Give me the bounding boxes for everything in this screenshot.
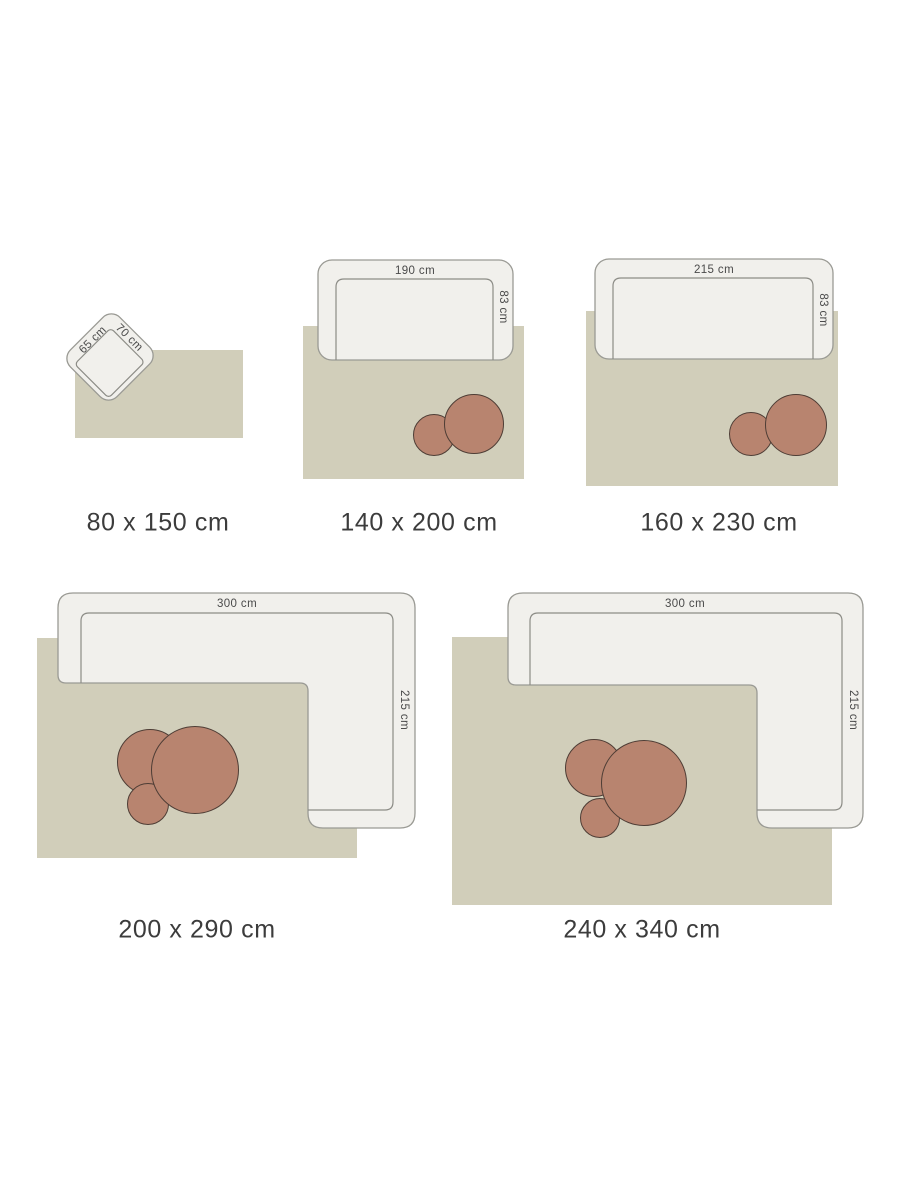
side-table-large xyxy=(151,726,239,814)
sofa-drawing: 215 cm 83 cm xyxy=(588,252,848,372)
corner-sofa-drawing: 300 cm 215 cm xyxy=(50,585,425,840)
side-table-large xyxy=(601,740,687,826)
sofa-width-dimension-label: 300 cm xyxy=(665,598,705,610)
size-caption: 240 x 340 cm xyxy=(563,916,720,945)
size-caption: 140 x 200 cm xyxy=(340,509,497,538)
size-caption: 160 x 230 cm xyxy=(640,509,797,538)
side-table-large xyxy=(765,394,827,456)
sofa-depth-dimension-label: 83 cm xyxy=(497,290,509,323)
sofa-depth-dimension-label: 83 cm xyxy=(817,293,829,326)
sofa-width-dimension-label: 190 cm xyxy=(395,265,435,277)
size-caption: 200 x 290 cm xyxy=(118,916,275,945)
size-caption: 80 x 150 cm xyxy=(87,509,230,538)
sofa-depth-dimension-label: 215 cm xyxy=(847,690,859,730)
corner-sofa-drawing: 300 cm 215 cm xyxy=(500,585,875,840)
sofa-depth-dimension-label: 215 cm xyxy=(398,690,410,730)
side-table-large xyxy=(444,394,504,454)
sofa-width-dimension-label: 300 cm xyxy=(217,598,257,610)
armchair-drawing: 65 cm 70 cm xyxy=(40,285,185,425)
corner-sofa-body xyxy=(58,593,415,828)
armchair-shape: 65 cm 70 cm xyxy=(62,309,158,405)
sofa-width-dimension-label: 215 cm xyxy=(694,264,734,276)
sofa-drawing: 190 cm 83 cm xyxy=(310,252,525,372)
rug-size-guide: 65 cm 70 cm 80 x 150 cm 190 cm 83 cm 140… xyxy=(0,0,900,1200)
armchair-body xyxy=(62,309,158,405)
